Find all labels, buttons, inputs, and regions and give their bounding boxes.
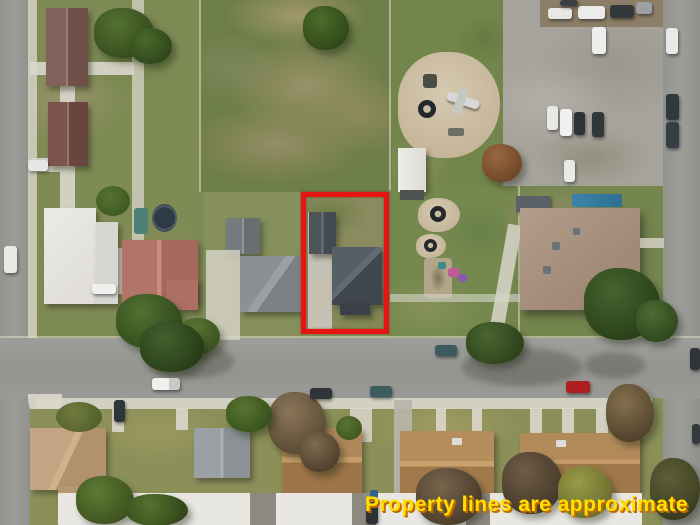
tree-bare bbox=[606, 384, 654, 442]
suv-dark bbox=[666, 94, 679, 120]
parking-lot bbox=[503, 0, 665, 186]
tire-planter bbox=[418, 100, 436, 118]
yard-path-horizontal bbox=[390, 294, 522, 302]
tree bbox=[130, 28, 172, 64]
roof-vent bbox=[552, 242, 560, 250]
tree-shadow bbox=[585, 352, 645, 378]
tree bbox=[226, 396, 272, 432]
play-structure-dark bbox=[423, 74, 437, 88]
field-fence-west bbox=[199, 0, 201, 192]
van-white bbox=[592, 27, 606, 54]
roof-vent bbox=[573, 228, 580, 235]
bottom-house-gray-roof bbox=[194, 428, 250, 478]
van-white bbox=[4, 246, 17, 273]
car-dark bbox=[560, 0, 578, 6]
tree bbox=[126, 494, 188, 525]
white-building-roof bbox=[44, 208, 96, 304]
property-boundary-outline bbox=[301, 192, 389, 334]
car-gray bbox=[636, 2, 652, 14]
pickup-white bbox=[152, 378, 180, 390]
car-dark bbox=[692, 424, 700, 444]
play-toy-teal bbox=[438, 262, 446, 269]
tree-bare bbox=[300, 432, 340, 472]
sidewalk-south bbox=[36, 398, 652, 409]
car-dark bbox=[114, 400, 125, 422]
tire-planter bbox=[430, 206, 446, 222]
play-bench bbox=[448, 128, 464, 136]
car-white bbox=[547, 106, 558, 130]
house-roof-brown-south bbox=[48, 102, 88, 166]
car-teal bbox=[370, 386, 392, 397]
tree bbox=[140, 322, 204, 372]
tree bbox=[303, 6, 349, 50]
curb-north bbox=[0, 336, 700, 338]
trampoline bbox=[152, 204, 177, 232]
play-toy-purple bbox=[458, 274, 467, 282]
building-walkway bbox=[640, 238, 664, 248]
tire-planter bbox=[424, 239, 437, 252]
tree bbox=[76, 476, 134, 524]
car-dark bbox=[574, 112, 585, 135]
street-right bbox=[663, 0, 700, 525]
car-dark bbox=[310, 388, 332, 399]
walkway-strip bbox=[176, 408, 188, 430]
car-dark bbox=[610, 5, 634, 18]
band-gap bbox=[250, 493, 276, 525]
aerial-photo: Property lines are approximate bbox=[0, 0, 700, 525]
bush bbox=[336, 416, 362, 440]
field-fence-east bbox=[389, 0, 391, 190]
car-dark bbox=[592, 112, 604, 137]
white-shed-roof bbox=[398, 148, 426, 192]
suv-dark bbox=[666, 122, 679, 148]
car-white bbox=[548, 8, 572, 19]
rooftop-ac-unit bbox=[452, 438, 462, 445]
roof-vent bbox=[543, 266, 551, 274]
car-dark bbox=[690, 348, 700, 370]
tree bbox=[636, 300, 678, 342]
neighbor-shed-roof bbox=[226, 218, 260, 254]
car-white bbox=[564, 160, 575, 182]
bush bbox=[56, 402, 102, 432]
tree-rust bbox=[482, 144, 522, 182]
tree bbox=[466, 322, 524, 364]
bush bbox=[96, 186, 130, 216]
van-white bbox=[578, 6, 605, 19]
vacant-field bbox=[200, 0, 392, 192]
car-white bbox=[560, 109, 572, 136]
rooftop-ac-unit bbox=[556, 440, 566, 447]
neighbor-house-roof-gray bbox=[240, 256, 302, 312]
shed-dark-base bbox=[400, 190, 424, 200]
blue-pool-cover bbox=[572, 194, 622, 207]
car-white bbox=[28, 160, 48, 171]
disclaimer-text: Property lines are approximate bbox=[365, 493, 688, 517]
car-white bbox=[666, 28, 678, 54]
car-red bbox=[566, 381, 590, 393]
car-white bbox=[92, 284, 116, 294]
lap-pool bbox=[134, 208, 148, 234]
house-roof-brown-north bbox=[46, 8, 88, 86]
car-teal bbox=[435, 345, 457, 356]
